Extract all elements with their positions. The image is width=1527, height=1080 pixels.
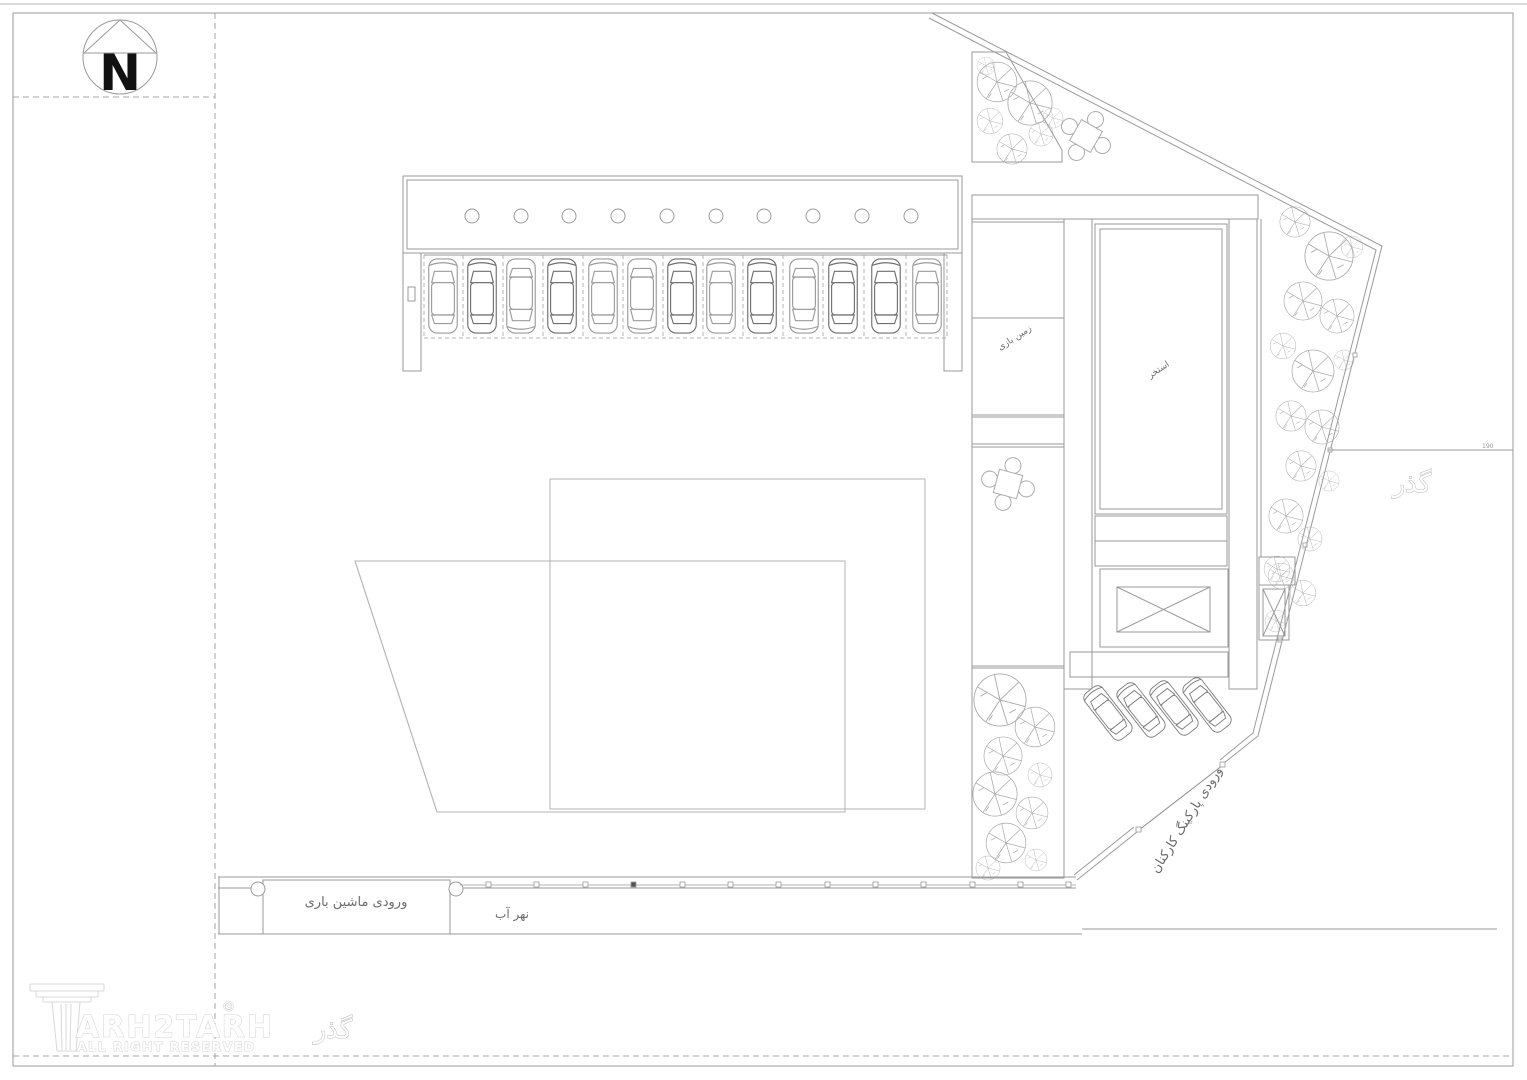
tree-icon — [1269, 499, 1303, 533]
fence-posts — [486, 882, 1071, 887]
water-channel-label: نهر آب — [495, 906, 529, 922]
tree-icon — [1305, 410, 1339, 444]
building-block-a — [550, 479, 925, 809]
tree-icon — [1292, 350, 1334, 392]
tree-icon — [977, 108, 1003, 134]
tree-icon — [1025, 849, 1047, 871]
tree-icon — [1015, 707, 1055, 747]
gazebo — [1100, 569, 1228, 647]
tree-icon — [1319, 471, 1339, 491]
car-icon — [468, 259, 497, 333]
side-structure — [1259, 556, 1295, 640]
car-icon — [913, 259, 942, 333]
tree-icon — [1284, 282, 1322, 320]
car-icon — [829, 259, 858, 333]
edge-dimension-label: 190 — [1482, 443, 1494, 450]
tree-icon — [977, 57, 995, 75]
copyright-mark: © — [222, 1000, 235, 1015]
bottom-road: ورودی ماشین باری نهر آب — [218, 877, 1497, 934]
passage-label-bottom: گذر — [312, 1014, 353, 1045]
car-icon — [707, 259, 736, 333]
west-tree-column — [972, 668, 1064, 880]
right-tree-strip — [1261, 207, 1363, 632]
door-mark — [408, 287, 415, 301]
car-icon — [628, 259, 657, 333]
pool-label: استخر — [1145, 360, 1171, 382]
car-icon — [668, 259, 697, 333]
tree-icon — [1264, 556, 1290, 582]
parking-canopy — [403, 176, 962, 371]
tree-icon — [1029, 122, 1053, 146]
car-icon — [548, 259, 577, 333]
tree-icon — [997, 134, 1027, 164]
top-tree-bed — [972, 52, 1063, 164]
page-frame — [0, 4, 1527, 1066]
car-icon — [790, 259, 819, 333]
tree-icon — [973, 772, 1017, 816]
car-icon — [748, 259, 777, 333]
tree-icon — [1276, 401, 1306, 431]
north-label: N — [99, 44, 141, 102]
walkways — [972, 195, 1258, 689]
north-arrow: N — [83, 20, 157, 102]
brand-tagline: ALL RIGHT RESERVED — [77, 1039, 256, 1054]
tree-icon — [1270, 333, 1296, 359]
table-with-chairs-icon — [975, 451, 1041, 517]
staff-parking-entrance-label: ورودی پارکینگ کارکنان — [1147, 764, 1226, 876]
cargo-entrance-label: ورودی ماشین باری — [305, 895, 408, 910]
staff-parking-cars — [1081, 675, 1234, 743]
pool: استخر — [1095, 224, 1227, 514]
tree-icon — [1280, 207, 1310, 237]
passage-label-right: گذر — [1391, 468, 1432, 499]
tree-icon — [1028, 763, 1052, 787]
building-block-b — [355, 561, 845, 812]
car-icon — [589, 259, 618, 333]
tree-icon — [1334, 350, 1354, 370]
tree-icon — [986, 823, 1026, 863]
car-icon — [507, 259, 536, 333]
tree-icon — [1008, 81, 1052, 125]
tree-icon — [1341, 236, 1363, 258]
site-plan-page: N — [0, 0, 1527, 1080]
playground-room-label: زمین بازی — [996, 324, 1034, 353]
tree-icon — [1016, 797, 1048, 829]
tree-icon — [974, 674, 1026, 726]
tree-icon — [1265, 610, 1287, 632]
site-plan-canvas: N — [0, 0, 1527, 1080]
brand-logo: ARH2TARH © ALL RIGHT RESERVED — [30, 984, 274, 1054]
car-icon — [872, 259, 901, 333]
tree-icon — [984, 737, 1022, 775]
tree-icon — [1286, 451, 1316, 481]
hatched-buildings — [355, 479, 925, 812]
tree-icon — [976, 856, 1000, 880]
right-street: 190 گذر — [1328, 443, 1513, 499]
car-icon — [429, 259, 458, 333]
tree-icon — [1320, 299, 1354, 333]
tree-icon — [977, 62, 1017, 102]
